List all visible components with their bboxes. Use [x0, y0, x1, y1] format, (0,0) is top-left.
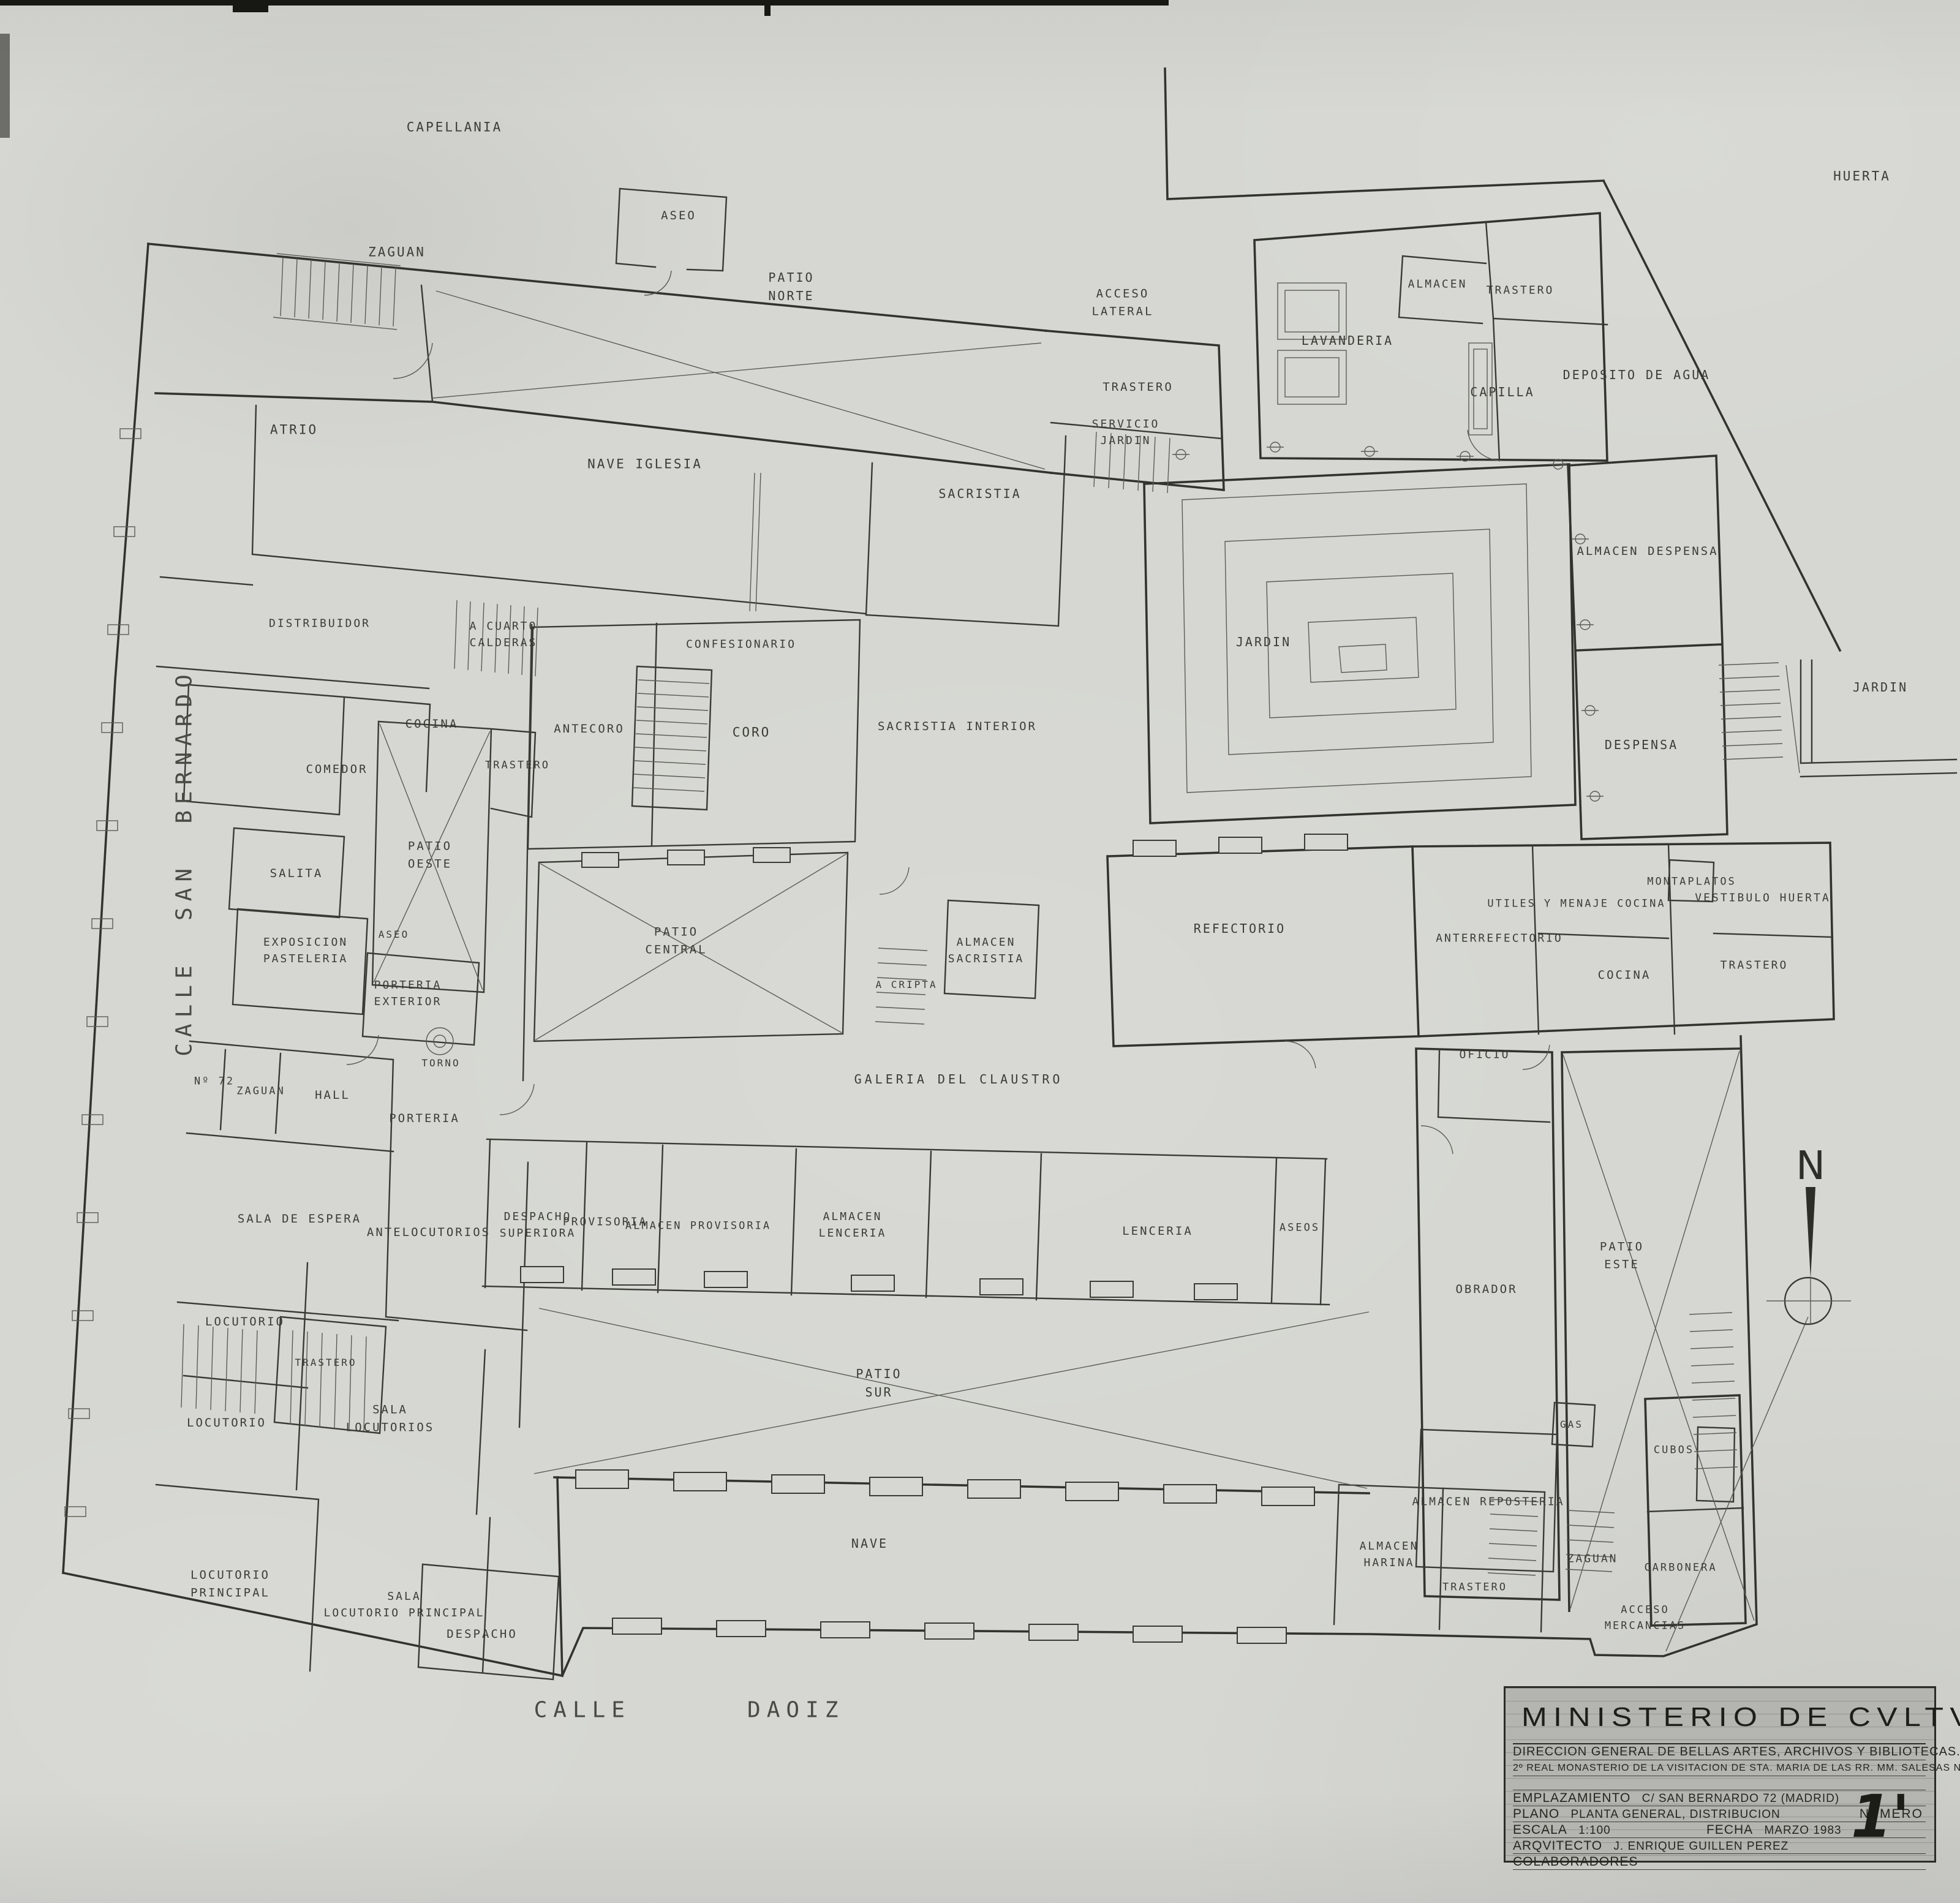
title-block-colaboradores: COLABORADORES	[1513, 1854, 1926, 1870]
room-label-n-72: Nº 72	[194, 1074, 235, 1090]
room-label-porteria: PORTERIA	[389, 1110, 460, 1128]
room-label-atrio: ATRIO	[270, 420, 318, 440]
room-label-acceso-mercancias: ACCESO MERCANCIAS	[1605, 1603, 1686, 1634]
room-label-utiles-y-menaje-cocina: UTILES Y MENAJE COCINA	[1487, 896, 1665, 912]
room-label-nave-iglesia: NAVE IGLESIA	[587, 454, 703, 474]
room-label-trastero: TRASTERO	[485, 758, 550, 774]
room-label-despensa: DESPENSA	[1605, 736, 1678, 754]
room-label-a-cuarto-calderas: A CUARTO CALDERAS	[470, 618, 538, 651]
room-label-refectorio: REFECTORIO	[1194, 919, 1286, 938]
room-label-montaplatos: MONTAPLATOS	[1647, 874, 1736, 890]
room-label-jardin: JARDIN	[1853, 678, 1908, 696]
room-label-cubos: CUBOS	[1654, 1442, 1694, 1458]
room-label-lenceria: LENCERIA	[1122, 1223, 1193, 1240]
arquitecto-label: ARQVITECTO	[1513, 1839, 1602, 1853]
escala-value: 1:100	[1578, 1824, 1611, 1837]
room-label-oficio: OFICIO	[1459, 1047, 1510, 1063]
room-label-carbonera: CARBONERA	[1644, 1560, 1717, 1576]
room-label-anterrefectorio: ANTERREFECTORIO	[1436, 930, 1563, 947]
room-label-huerta: HUERTA	[1833, 167, 1891, 186]
room-label-almacen: ALMACEN	[1408, 276, 1468, 293]
room-label-jardin: JARDIN	[1236, 633, 1291, 651]
fecha-label: FECHA	[1706, 1823, 1753, 1837]
room-label-almacen-despensa: ALMACEN DESPENSA	[1577, 543, 1718, 560]
room-label-trastero: TRASTERO	[295, 1355, 356, 1370]
room-label-obrador: OBRADOR	[1455, 1281, 1517, 1298]
room-label-galeria-del-claustro: GALERIA DEL CLAUSTRO	[854, 1070, 1063, 1088]
room-label-locutorio-principal: LOCUTORIO PRINCIPAL	[190, 1567, 270, 1602]
room-label-almacen-provisoria: ALMACEN PROVISORIA	[625, 1218, 771, 1234]
room-label-zaguan: ZAGUAN	[1567, 1551, 1618, 1567]
room-label-capilla: CAPILLA	[1470, 383, 1534, 401]
escala-label: ESCALA	[1513, 1823, 1567, 1837]
room-label-almacen-lenceria: ALMACEN LENCERIA	[819, 1208, 887, 1242]
room-label-trastero: TRASTERO	[1721, 957, 1789, 974]
room-label-patio-este: PATIO ESTE	[1600, 1238, 1644, 1273]
room-label-porteria-exterior: PORTERIA EXTERIOR	[374, 977, 442, 1010]
room-label-trastero: TRASTERO	[1442, 1580, 1507, 1596]
room-label-patio-central: PATIO CENTRAL	[645, 924, 707, 959]
room-label-cocina: COCINA	[1598, 967, 1651, 984]
room-label-antecoro: ANTECORO	[554, 720, 625, 738]
room-label-hall: HALL	[315, 1087, 350, 1104]
scan-edge-mark	[0, 0, 1169, 6]
sheet-number: 1'	[1851, 1782, 1910, 1851]
room-label-zaguan: ZAGUAN	[368, 243, 426, 262]
room-label-zaguan: ZAGUAN	[236, 1083, 285, 1099]
room-labels-layer: CAPELLANIAHUERTAZAGUANASEOPATIO NORTEACC…	[0, 0, 1960, 1903]
room-label-despacho: DESPACHO	[447, 1626, 518, 1643]
room-label-antelocutorios: ANTELOCUTORIOS	[367, 1224, 491, 1242]
arquitecto-value: J. ENRIQUE GUILLEN PEREZ	[1613, 1840, 1789, 1853]
title-block-header: MINISTERIO DE CVLTVRA	[1513, 1692, 1926, 1744]
title-block-monasterio: 2º REAL MONASTERIO DE LA VISITACION DE S…	[1513, 1760, 1926, 1776]
room-label-acceso-lateral: ACCESO LATERAL	[1091, 285, 1153, 320]
room-label-sacristia: SACRISTIA	[938, 484, 1021, 503]
room-label-patio-oeste: PATIO OESTE	[408, 838, 452, 873]
room-label-patio-norte: PATIO NORTE	[768, 268, 814, 305]
scan-blemish	[764, 0, 771, 16]
room-label-confesionario: CONFESIONARIO	[686, 636, 796, 653]
room-label-aseo: ASEO	[661, 207, 696, 225]
street-label-calle-san-bernardo: CALLE SAN BERNARDO	[172, 668, 197, 1056]
room-label-torno: TORNO	[421, 1056, 460, 1071]
room-label-exposicion-pasteleria: EXPOSICION PASTELERIA	[263, 934, 348, 967]
room-label-locutorio: LOCUTORIO	[205, 1313, 285, 1331]
room-label-servicio-jardin: SERVICIO JARDIN	[1092, 416, 1160, 449]
emplazamiento-value: C/ SAN BERNARDO 72 (MADRID)	[1642, 1792, 1840, 1805]
room-label-sacristia-interior: SACRISTIA INTERIOR	[878, 718, 1037, 736]
room-label-almacen-reposteria: ALMACEN REPOSTERIA	[1412, 1494, 1564, 1510]
colaboradores-label: COLABORADORES	[1513, 1855, 1638, 1869]
room-label-distribuidor: DISTRIBUIDOR	[269, 616, 371, 632]
room-label-salita: SALITA	[270, 865, 323, 883]
room-label-locutorio: LOCUTORIO	[187, 1414, 266, 1432]
room-label-vestibulo-huerta: VESTIBULO HUERTA	[1695, 890, 1830, 906]
title-block-direccion: DIRECCION GENERAL DE BELLAS ARTES, ARCHI…	[1513, 1744, 1926, 1760]
north-letter: N	[1796, 1144, 1825, 1189]
plano-value: PLANTA GENERAL, DISTRIBUCION	[1570, 1808, 1780, 1821]
room-label-sala-locutorios: SALA LOCUTORIOS	[346, 1401, 434, 1436]
room-label-a-cripta: A CRIPTA	[875, 978, 937, 992]
room-label-almacen-harina: ALMACEN HARINA	[1360, 1538, 1419, 1571]
room-label-lavanderia: LAVANDERIA	[1302, 331, 1393, 350]
room-label-almacen-sacristia: ALMACEN SACRISTIA	[948, 934, 1025, 967]
room-label-capellania: CAPELLANIA	[407, 118, 502, 137]
street-label-calle-daoiz: CALLE DAOIZ	[534, 1698, 845, 1723]
room-label-sala-locutorio-principal: SALA LOCUTORIO PRINCIPAL	[324, 1588, 485, 1621]
scan-blemish	[233, 0, 268, 12]
room-label-cocina: COCINA	[405, 715, 459, 733]
plano-label: PLANO	[1513, 1807, 1559, 1821]
fecha-value: MARZO 1983	[1764, 1824, 1841, 1837]
scan-blemish	[0, 34, 10, 138]
room-label-trastero: TRASTERO	[1487, 282, 1555, 299]
room-label-nave: NAVE	[851, 1534, 888, 1553]
room-label-aseos: ASEOS	[1280, 1220, 1320, 1236]
title-block-ministry: MINISTERIO DE CVLTVRA	[1521, 1702, 1960, 1733]
room-label-trastero: TRASTERO	[1102, 379, 1174, 396]
room-label-sala-de-espera: SALA DE ESPERA	[238, 1210, 361, 1228]
room-label-comedor: COMEDOR	[306, 761, 367, 778]
room-label-gas: GAS	[1560, 1417, 1583, 1432]
emplazamiento-label: EMPLAZAMIENTO	[1513, 1791, 1630, 1805]
room-label-coro: CORO	[733, 723, 771, 742]
title-block: MINISTERIO DE CVLTVRA DIRECCION GENERAL …	[1504, 1686, 1936, 1863]
room-label-deposito-de-agua: DEPOSITO DE AGUA	[1563, 366, 1711, 384]
room-label-patio-sur: PATIO SUR	[856, 1365, 902, 1401]
room-label-aseo: ASEO	[379, 927, 410, 942]
